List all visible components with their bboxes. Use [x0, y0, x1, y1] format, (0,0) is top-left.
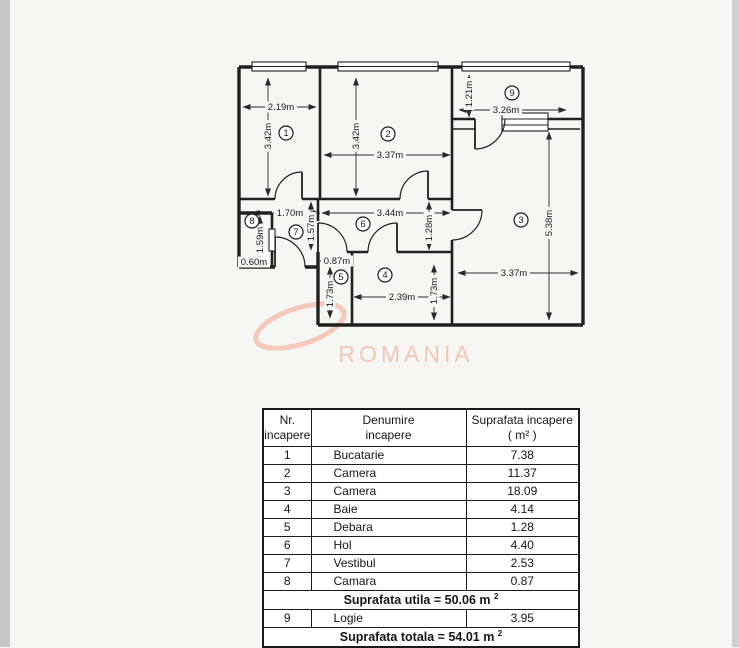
col-header-nr-line2: incapere — [264, 428, 310, 442]
area-table: Nr. incapere Denumire incapere Suprafata… — [262, 408, 580, 648]
col-header-denumire-line2: incapere — [365, 428, 411, 442]
col-header-suprafata-line2: ( m² ) — [508, 428, 537, 442]
col-header-denumire: Denumire incapere — [311, 409, 466, 447]
windows — [252, 62, 570, 131]
room-nr-cell: 7 — [263, 555, 311, 573]
room-nr-cell: 9 — [263, 610, 311, 628]
room-name-cell: Camera — [311, 465, 466, 483]
room-nr-cell: 6 — [263, 537, 311, 555]
room-name-cell: Baie — [311, 501, 466, 519]
room-labels: 123456789 — [245, 86, 528, 284]
dimension-label: 3.42m — [351, 123, 362, 149]
room-number: 1 — [283, 128, 288, 139]
table-row: 2Camera11.37 — [263, 465, 579, 483]
dimension-label: 2.39m — [389, 292, 415, 303]
table-row: 3Camera18.09 — [263, 483, 579, 501]
dimension-label: 1.73m — [429, 278, 440, 304]
table-header-row: Nr. incapere Denumire incapere Suprafata… — [263, 409, 579, 447]
room-nr-cell: 5 — [263, 519, 311, 537]
dimension-label: 3.42m — [263, 123, 274, 149]
room-name-cell: Camera — [311, 483, 466, 501]
dimension-labels: 2.19m3.42m3.42m3.37m1.21m3.26m5.38m3.37m… — [238, 78, 555, 310]
room-number: 6 — [360, 219, 365, 230]
room-name-cell: Bucatarie — [311, 447, 466, 465]
watermark-logo: ROMANIA — [251, 295, 474, 367]
room-number: 4 — [382, 270, 387, 281]
room-name-cell: Hol — [311, 537, 466, 555]
total-row-cell: Suprafata totala = 54.01 m 2 — [263, 628, 579, 648]
room-number: 7 — [293, 227, 298, 238]
total-row: Suprafata totala = 54.01 m 2 — [263, 628, 579, 648]
table-row: 6Hol4.40 — [263, 537, 579, 555]
col-header-suprafata-line1: Suprafata incapere — [472, 413, 573, 427]
dimension-label: 1.21m — [464, 81, 475, 107]
table-row: 8Camara0.87 — [263, 573, 579, 591]
room-area-cell: 2.53 — [466, 555, 579, 573]
room-number: 5 — [338, 272, 343, 283]
table-row: 7Vestibul2.53 — [263, 555, 579, 573]
room-area-cell: 1.28 — [466, 519, 579, 537]
dimension-label: 0.60m — [241, 257, 267, 268]
room-name-cell: Logie — [311, 610, 466, 628]
dimension-label: 1.28m — [424, 215, 435, 241]
watermark-text: ROMANIA — [338, 341, 473, 367]
dimension-label: 2.19m — [268, 102, 294, 113]
dimension-label: 3.37m — [377, 150, 403, 161]
dimension-label: 1.59m — [255, 227, 266, 253]
col-header-denumire-line1: Denumire — [362, 413, 414, 427]
room-nr-cell: 4 — [263, 501, 311, 519]
room-area-cell: 7.38 — [466, 447, 579, 465]
door-room8 — [269, 229, 275, 251]
room-area-cell: 11.37 — [466, 465, 579, 483]
room-nr-cell: 8 — [263, 573, 311, 591]
room-nr-cell: 2 — [263, 465, 311, 483]
room-area-cell: 4.14 — [466, 501, 579, 519]
col-header-nr-line1: Nr. — [280, 413, 295, 427]
room-area-cell: 0.87 — [466, 573, 579, 591]
table-row: 5Debara1.28 — [263, 519, 579, 537]
room-name-cell: Camara — [311, 573, 466, 591]
subtotal-row-cell: Suprafata utila = 50.06 m 2 — [263, 591, 579, 610]
room-number: 3 — [518, 215, 523, 226]
table-row: 9Logie3.95 — [263, 610, 579, 628]
room-area-cell: 4.40 — [466, 537, 579, 555]
subtotal-row: Suprafata utila = 50.06 m 2 — [263, 591, 579, 610]
room-area-cell: 18.09 — [466, 483, 579, 501]
dimension-label: 3.26m — [493, 105, 519, 116]
col-header-nr: Nr. incapere — [263, 409, 311, 447]
room-name-cell: Vestibul — [311, 555, 466, 573]
dimension-label: 1.73m — [325, 281, 336, 307]
room-area-cell: 3.95 — [466, 610, 579, 628]
room-nr-cell: 3 — [263, 483, 311, 501]
room-name-cell: Debara — [311, 519, 466, 537]
dimension-label: 1.70m — [277, 208, 303, 219]
room-number: 9 — [509, 88, 514, 99]
dimension-label: 1.57m — [306, 215, 317, 241]
table-body: 1Bucatarie7.382Camera11.373Camera18.094B… — [263, 447, 579, 648]
dimension-label: 5.38m — [544, 210, 555, 236]
room-number: 2 — [385, 129, 390, 140]
room-nr-cell: 1 — [263, 447, 311, 465]
table-row: 1Bucatarie7.38 — [263, 447, 579, 465]
dimension-label: 0.87m — [324, 256, 350, 267]
dimension-label: 3.44m — [377, 208, 403, 219]
table-row: 4Baie4.14 — [263, 501, 579, 519]
col-header-suprafata: Suprafata incapere ( m² ) — [466, 409, 579, 447]
dimension-label: 3.37m — [501, 268, 527, 279]
room-number: 8 — [249, 216, 254, 227]
